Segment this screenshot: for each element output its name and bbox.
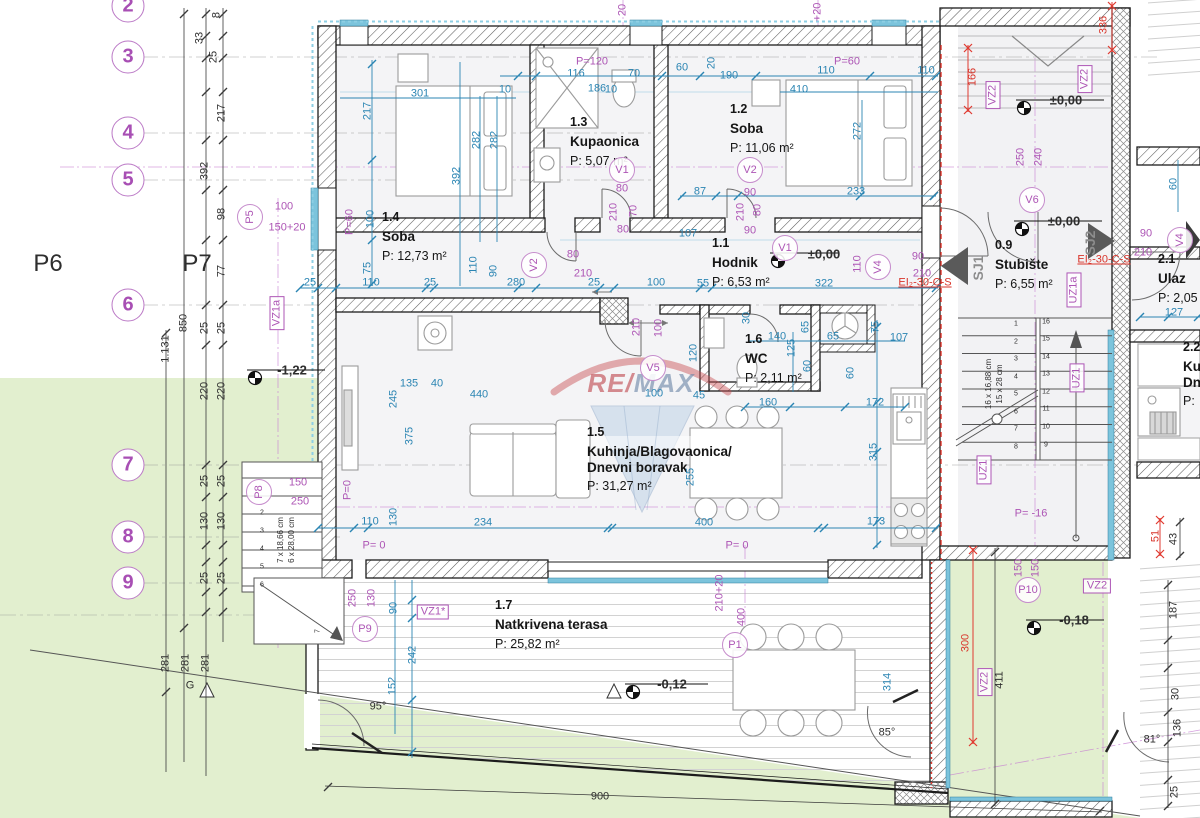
chair [695, 498, 717, 520]
chair [778, 624, 804, 650]
chair [726, 406, 748, 428]
pillow [884, 138, 906, 180]
pillow [484, 92, 506, 136]
chair [740, 710, 766, 736]
wc-toilet [737, 355, 757, 381]
wc-basin [704, 318, 724, 348]
nightstand [752, 80, 780, 106]
chair [757, 406, 779, 428]
sofa-chaise [556, 420, 590, 498]
chair [778, 710, 804, 736]
chair [757, 498, 779, 520]
chair [740, 624, 766, 650]
dining-table [690, 428, 782, 498]
floorplan-canvas: RE/MAX 23456789 1.4SobaP: 12,73 m²1.3Kup… [0, 0, 1200, 818]
chair [816, 624, 842, 650]
section-arrow-sj1 [941, 247, 968, 285]
pillow [484, 146, 506, 190]
shower-head [543, 57, 553, 67]
nightstand [398, 54, 428, 82]
chair [695, 406, 717, 428]
floorplan-drawing [0, 0, 1200, 818]
chair [726, 498, 748, 520]
chair [816, 710, 842, 736]
counter-2-2 [1138, 344, 1200, 386]
terrace-table [733, 650, 855, 710]
